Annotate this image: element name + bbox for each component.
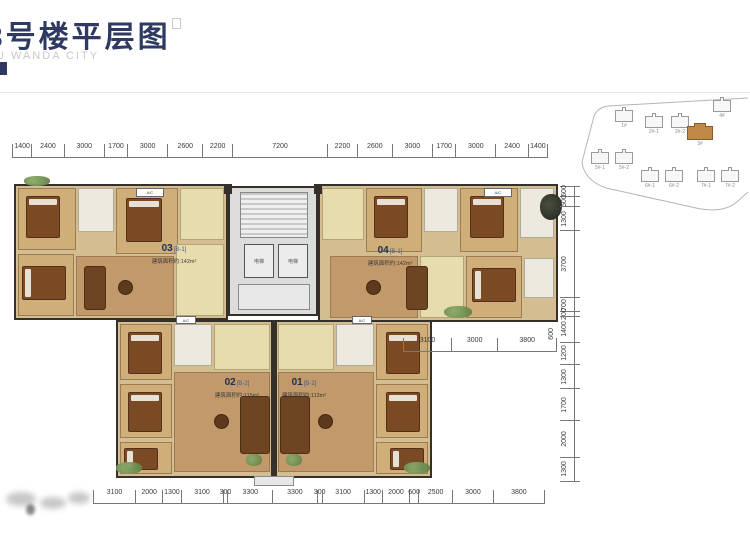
unit-type-code: [B-1]	[390, 249, 403, 255]
elevator: 电梯	[278, 244, 308, 278]
room-utility	[524, 258, 554, 298]
room-kitchen	[322, 188, 364, 240]
wall-segment	[224, 184, 232, 194]
tree-icon	[540, 194, 562, 220]
site-plan-building: 5#-1	[588, 152, 612, 171]
dimension-value: 1300	[561, 211, 568, 227]
title-superscript-mark	[172, 18, 181, 29]
site-plan-building: 1#	[612, 110, 636, 129]
dimension-value: 1700	[561, 397, 568, 413]
site-plan-building: 4#	[710, 100, 734, 119]
table-furniture	[214, 414, 229, 429]
dimension-segment: 3100	[322, 490, 364, 504]
dimension-segment: 3100	[93, 490, 135, 504]
building-footprint-icon	[645, 116, 663, 128]
dimension-value: 2600	[367, 143, 383, 150]
ac-platform: A/C	[484, 188, 512, 197]
dimension-line-top: 1400240030001700300026002200720022002600…	[12, 144, 548, 158]
unit-type-code: [B-2]	[237, 381, 250, 387]
dimension-segment: 3300	[227, 490, 272, 504]
dimension-segment: 2400	[31, 144, 63, 158]
ac-platform: A/C	[136, 188, 164, 197]
building-label: 7#-1	[694, 183, 718, 189]
dimension-segment: 1400	[560, 316, 580, 342]
dimension-segment: 3000	[452, 490, 493, 504]
page-subtitle: U WANDA CITY	[0, 50, 99, 62]
dimension-value: 1700	[436, 143, 452, 150]
dimension-segment: 1700	[560, 388, 580, 419]
landscape-planting	[404, 462, 430, 474]
unit-number-row: 04[B-1]	[348, 240, 432, 258]
dimension-segment: 1300	[560, 457, 580, 482]
landscape-planting	[444, 306, 472, 318]
building-footprint-icon	[721, 170, 739, 182]
bed-furniture	[470, 196, 504, 238]
dimension-value: 2000	[141, 489, 157, 496]
dimension-value: 3100	[420, 337, 436, 344]
bed-furniture	[126, 198, 162, 242]
dimension-segment: 1300	[560, 364, 580, 388]
building-label: 6#-1	[638, 183, 662, 189]
dimension-segment: 1300	[162, 490, 180, 504]
dimension-value: 2000	[561, 431, 568, 447]
site-key-plan: 1# 2#-1 2#-2 4#	[578, 96, 748, 218]
dimension-overall-value: 600	[548, 328, 555, 340]
building-label: 6#-2	[662, 183, 686, 189]
dimension-line-mid-right: 310030003800	[403, 338, 557, 352]
bed-furniture	[128, 332, 162, 374]
dimension-value: 3000	[468, 143, 484, 150]
dimension-value: 3100	[194, 489, 210, 496]
dimension-value: 3000	[467, 337, 483, 344]
dimension-segment: 3800	[497, 338, 557, 352]
bed-furniture	[374, 196, 408, 238]
dimension-value: 2200	[210, 143, 226, 150]
building-footprint-icon	[697, 170, 715, 182]
dimension-value: 3000	[465, 489, 481, 496]
dimension-value: 1300	[561, 462, 568, 478]
dimension-segment: 1300	[364, 490, 382, 504]
building-footprint-icon	[591, 152, 609, 164]
dimension-value: 2600	[177, 143, 193, 150]
dimension-segment: 1700	[432, 144, 455, 158]
site-plan-building: 5#-2	[612, 152, 636, 171]
dimension-segment: 1300	[560, 206, 580, 230]
dimension-segment: 2200	[202, 144, 232, 158]
dimension-segment: 3000	[127, 144, 167, 158]
ac-platform: A/C	[352, 316, 372, 324]
building-label: 5#-2	[612, 165, 636, 171]
room-kitchen	[180, 188, 224, 240]
dimension-segment: 3100	[403, 338, 451, 352]
site-plan-building: 2#-1	[642, 116, 666, 135]
room-bathroom	[336, 324, 374, 366]
dimension-segment: 2600	[357, 144, 392, 158]
ac-platform: A/C	[176, 316, 196, 324]
building-label: 7#-2	[718, 183, 742, 189]
dimension-segment: 2200	[327, 144, 357, 158]
dimension-segment: 600	[409, 490, 418, 504]
building-footprint-icon	[615, 152, 633, 164]
dimension-segment: 1700	[104, 144, 127, 158]
bed-furniture	[386, 392, 420, 432]
unit-label: 04[B-1] 建筑面积约:142m²	[348, 240, 432, 267]
dimension-value: 3300	[242, 489, 258, 496]
bed-furniture	[22, 266, 66, 300]
building-label: 4#	[710, 113, 734, 119]
sofa-furniture	[280, 396, 310, 454]
watermark-smudge	[68, 492, 90, 504]
dimension-segment: 1200	[560, 342, 580, 365]
dimension-value: 1400	[530, 143, 546, 150]
landscape-planting	[286, 454, 302, 466]
unit-area-text: 建筑面积约:142m²	[132, 257, 216, 265]
building-footprint-icon	[615, 110, 633, 122]
unit-type-code: [B-2]	[304, 381, 317, 387]
dimension-value: 3300	[287, 489, 303, 496]
landscape-planting	[246, 454, 262, 466]
dimension-value: 1300	[164, 489, 180, 496]
sofa-furniture	[84, 266, 106, 310]
dimension-segment: 2400	[495, 144, 527, 158]
dimension-value: 2500	[428, 489, 444, 496]
dimension-line-right: 5005001300370070020014001200130017002000…	[560, 186, 580, 482]
dimension-value: 3700	[561, 257, 568, 273]
dimension-segment: 3000	[455, 144, 495, 158]
dimension-value: 3100	[107, 489, 123, 496]
unit-label: 01[B-2] 建筑面积约:113m²	[262, 372, 346, 399]
dimension-segment: 3700	[560, 230, 580, 297]
dimension-value: 1300	[561, 369, 568, 385]
dimension-segment: 3000	[392, 144, 432, 158]
watermark-smudge	[40, 497, 66, 509]
sofa-furniture	[240, 396, 270, 454]
dimension-value: 1400	[14, 143, 30, 150]
unit-number: 01	[292, 377, 303, 388]
site-plan-building: 6#-1	[638, 170, 662, 189]
landscape-planting	[116, 462, 142, 474]
site-plan-building: 7#-2	[718, 170, 742, 189]
dimension-value: 2400	[504, 143, 520, 150]
floor-plan-page: 3号楼平层图 U WANDA CITY 1# 2#-1	[0, 0, 750, 560]
watermark-smudge	[26, 504, 35, 515]
wall-segment	[314, 184, 322, 194]
dimension-value: 1700	[108, 143, 124, 150]
dimension-segment: 2500	[418, 490, 452, 504]
table-furniture	[118, 280, 133, 295]
room-bathroom	[174, 324, 212, 366]
unit-type-code: [B-1]	[174, 247, 187, 253]
dimension-value: 2000	[388, 489, 404, 496]
dimension-value: 3000	[140, 143, 156, 150]
dimension-value: 1300	[365, 489, 381, 496]
unit-area-text: 建筑面积约:142m²	[348, 259, 432, 267]
dimension-value: 1400	[561, 321, 568, 337]
elevator-lobby	[238, 284, 310, 310]
site-plan-building: 7#-1	[694, 170, 718, 189]
dimension-segment: 3300	[272, 490, 317, 504]
building-label: 5#-1	[588, 165, 612, 171]
dimension-segment: 3000	[64, 144, 104, 158]
dimension-segment: 3800	[493, 490, 545, 504]
dimension-value: 3800	[511, 489, 527, 496]
bed-furniture	[128, 392, 162, 432]
dimension-segment: 7200	[232, 144, 327, 158]
landscape-planting	[24, 176, 50, 186]
building-label: 1#	[612, 123, 636, 129]
dimension-segment: 2600	[167, 144, 202, 158]
building-footprint-icon	[641, 170, 659, 182]
table-furniture	[318, 414, 333, 429]
dimension-segment: 2000	[382, 490, 409, 504]
building-footprint-icon	[665, 170, 683, 182]
bed-furniture	[472, 268, 516, 302]
header-divider	[0, 92, 750, 93]
dimension-value: 7200	[272, 143, 288, 150]
logo-chip	[0, 62, 7, 75]
room-bathroom	[424, 188, 458, 232]
unit-number: 04	[378, 245, 389, 256]
site-plan-building: 6#-2	[662, 170, 686, 189]
dimension-segment: 2000	[135, 490, 162, 504]
unit-number: 03	[162, 243, 173, 254]
room-kitchen	[278, 324, 334, 370]
building-label: 3#	[684, 141, 716, 147]
table-furniture	[366, 280, 381, 295]
building-footprint-icon	[713, 100, 731, 112]
room-kitchen	[214, 324, 270, 370]
site-plan-building: 3#	[684, 126, 716, 147]
building-footprint-icon	[687, 126, 713, 140]
dimension-value: 3000	[76, 143, 92, 150]
dimension-value: 3800	[519, 337, 535, 344]
dimension-value: 3100	[335, 489, 351, 496]
dimension-segment: 3100	[181, 490, 223, 504]
staircase	[240, 192, 308, 238]
building-label: 2#-1	[642, 129, 666, 135]
entrance-lobby	[254, 476, 294, 486]
unit-number-row: 03[B-1]	[132, 238, 216, 256]
unit-number-row: 01[B-2]	[262, 372, 346, 390]
bed-furniture	[26, 196, 60, 238]
dimension-segment: 2000	[560, 420, 580, 457]
dimension-line-bottom: 3100200013003100300330033003003100130020…	[93, 490, 545, 504]
dimension-segment: 1400	[528, 144, 548, 158]
dimension-value: 1200	[561, 346, 568, 362]
room-bathroom	[78, 188, 114, 232]
party-wall	[271, 322, 277, 476]
dimension-segment: 500	[560, 196, 580, 206]
unit-label: 03[B-1] 建筑面积约:142m²	[132, 238, 216, 265]
unit-number: 02	[225, 377, 236, 388]
elevator: 电梯	[244, 244, 274, 278]
dimension-value: 3000	[405, 143, 421, 150]
dimension-segment: 3000	[451, 338, 497, 352]
dimension-segment: 1400	[12, 144, 31, 158]
dimension-value: 2200	[335, 143, 351, 150]
dimension-value: 2400	[40, 143, 56, 150]
unit-area-text: 建筑面积约:113m²	[262, 391, 346, 399]
sofa-furniture	[406, 266, 428, 310]
